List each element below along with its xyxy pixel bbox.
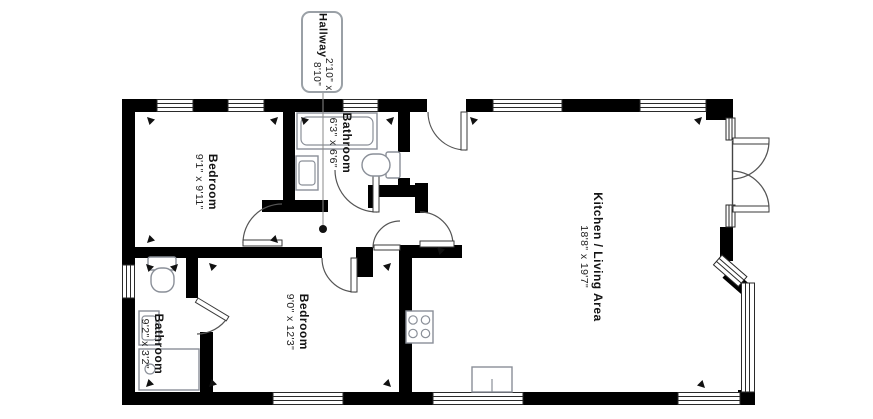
floor-plan: Bedroom 9'1" x 9'11" Bathroom 6'3" x 6'6…	[0, 0, 873, 419]
room-label-bedroom-1: Bedroom 9'1" x 9'11"	[193, 154, 219, 210]
room-name: Bathroom	[339, 113, 353, 174]
kitchen-sink	[472, 367, 512, 392]
entry-door	[428, 112, 467, 150]
room-label-kitchen-living: Kitchen / Living Area 18'8" x 19'7"	[578, 192, 604, 321]
callout-name: Hallway	[315, 13, 328, 57]
bathroom-1-sink	[296, 156, 318, 190]
room-name: Bedroom	[205, 154, 219, 210]
room-dims: 18'8" x 19'7"	[578, 192, 590, 321]
room-label-bathroom-1: Bathroom 6'3" x 6'6"	[327, 113, 353, 174]
kitchen-door	[420, 212, 454, 247]
callout-dims: 2'10" x 8'10"	[310, 57, 334, 91]
room-dims: 9'1" x 9'11"	[193, 154, 205, 210]
stove	[406, 311, 433, 343]
bedroom-2-door	[322, 258, 357, 292]
room-dims: 6'3" x 6'6"	[327, 113, 339, 174]
room-label-bedroom-2: Bedroom 9'0" x 12'3"	[284, 294, 310, 351]
walls	[122, 99, 755, 405]
floor-plan-drawing	[0, 0, 873, 419]
bathroom-2-toilet	[148, 257, 176, 292]
room-dims: 9'0" x 12'3"	[284, 294, 296, 351]
french-doors	[733, 138, 770, 212]
room-name: Kitchen / Living Area	[590, 192, 604, 321]
bathroom-2-door	[195, 298, 228, 334]
bathroom-1-toilet	[362, 152, 400, 178]
room-name: Bedroom	[296, 294, 310, 351]
callout-anchor-dot	[319, 225, 327, 233]
room-label-bathroom-2: Bathroom 9'2" x 3'2"	[139, 314, 165, 375]
room-dims: 9'2" x 3'2"	[139, 314, 151, 375]
hallway-east-door	[373, 221, 400, 250]
hallway-callout: Hallway 2'10" x 8'10"	[301, 11, 343, 93]
room-name: Bathroom	[151, 314, 165, 375]
